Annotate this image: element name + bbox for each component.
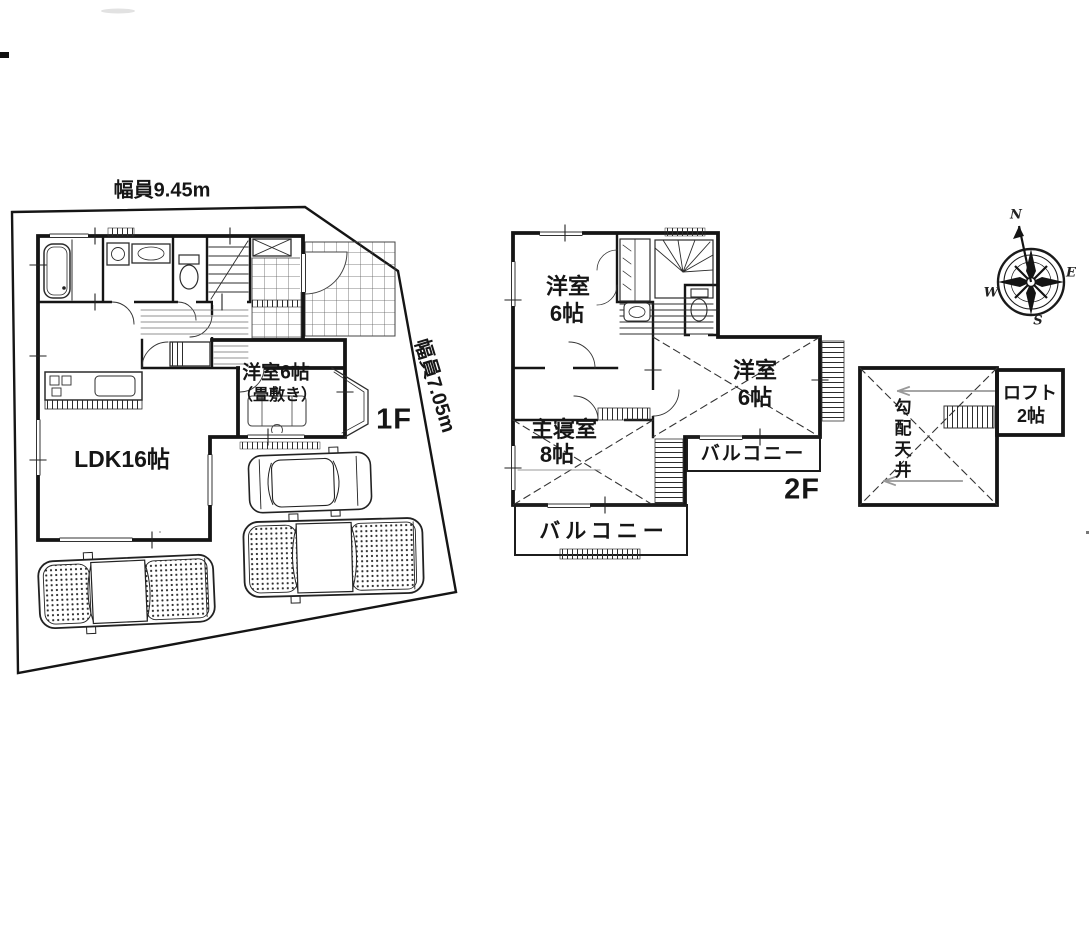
car-sedan-right [243, 511, 424, 605]
master-closet-2f [655, 439, 683, 503]
bathroom-1f [44, 240, 72, 300]
toilet-1f [179, 255, 199, 289]
car-compact [248, 446, 372, 519]
house-2f-inner-walls [513, 233, 718, 437]
stairs-1f [209, 241, 248, 299]
room-label-2f-nw-size: 6帖 [550, 296, 584, 328]
loft-ceiling-note: 勾配天井 [889, 398, 914, 482]
room-label-ldk: LDK16帖 [74, 440, 170, 474]
compass-rose [998, 226, 1064, 315]
closet-2f-nw [620, 239, 650, 301]
road-width-top-label: 幅員9.45m [114, 174, 211, 203]
kitchen-counter [45, 372, 142, 409]
floor-label-1f: 1F [376, 404, 412, 437]
room-label-2f-east-size: 6帖 [738, 380, 772, 412]
room-note-western-1f: （畳敷き） [237, 381, 317, 405]
compass-east-label: E [1066, 266, 1076, 281]
floor-label-2f: 2F [784, 474, 820, 507]
compass-north-label: N [1010, 208, 1022, 223]
loft-ladder [944, 406, 994, 428]
car-sedan-left [37, 547, 215, 636]
understair-closet-1f [170, 342, 210, 366]
loft-diagonals [860, 368, 997, 505]
compass-south-label: S [1033, 314, 1042, 329]
wic-2f [598, 408, 650, 420]
loft-size-label: 2帖 [1017, 402, 1045, 428]
hall-sink-2f [624, 303, 650, 321]
bay-window-1f [332, 368, 368, 437]
shoe-cabinet [253, 239, 291, 256]
washroom-1f [107, 243, 170, 265]
balcony-east-label: バルコニー [701, 439, 806, 466]
floorplan-scan: 幅員9.45m 幅員7.05m LDK16帖 洋室6帖 （畳敷き） 1F 洋室 … [0, 0, 1092, 940]
bay-window-2f-east [822, 341, 844, 421]
balcony-south-label: バルコニー [539, 515, 669, 545]
compass-west-label: W [984, 286, 999, 301]
room-label-master-size: 8帖 [540, 437, 574, 469]
